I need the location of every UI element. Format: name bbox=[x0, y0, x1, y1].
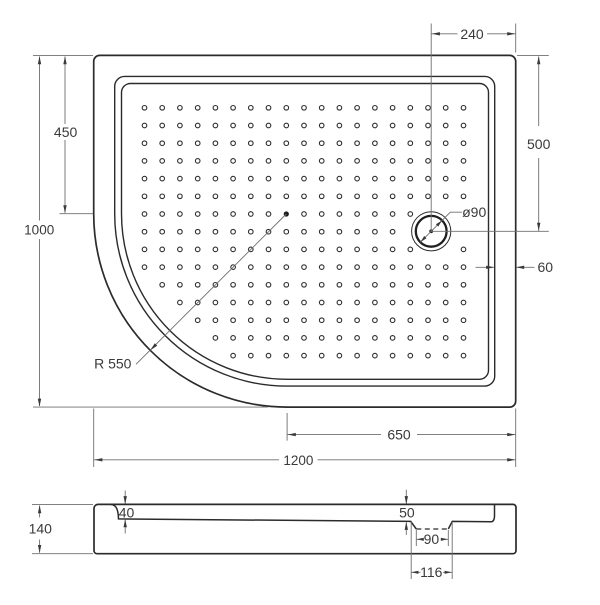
svg-text:60: 60 bbox=[538, 259, 554, 275]
svg-text:50: 50 bbox=[399, 505, 415, 521]
svg-text:R 550: R 550 bbox=[94, 356, 132, 372]
svg-text:240: 240 bbox=[460, 26, 484, 42]
svg-text:90: 90 bbox=[424, 531, 440, 547]
svg-text:450: 450 bbox=[54, 124, 78, 140]
svg-text:140: 140 bbox=[29, 521, 53, 537]
svg-text:1200: 1200 bbox=[283, 453, 313, 468]
svg-text:ø90: ø90 bbox=[462, 204, 486, 220]
svg-text:650: 650 bbox=[387, 427, 411, 443]
svg-text:116: 116 bbox=[420, 564, 443, 580]
svg-text:1000: 1000 bbox=[24, 222, 54, 237]
svg-text:500: 500 bbox=[527, 136, 551, 152]
svg-text:40: 40 bbox=[119, 504, 135, 520]
